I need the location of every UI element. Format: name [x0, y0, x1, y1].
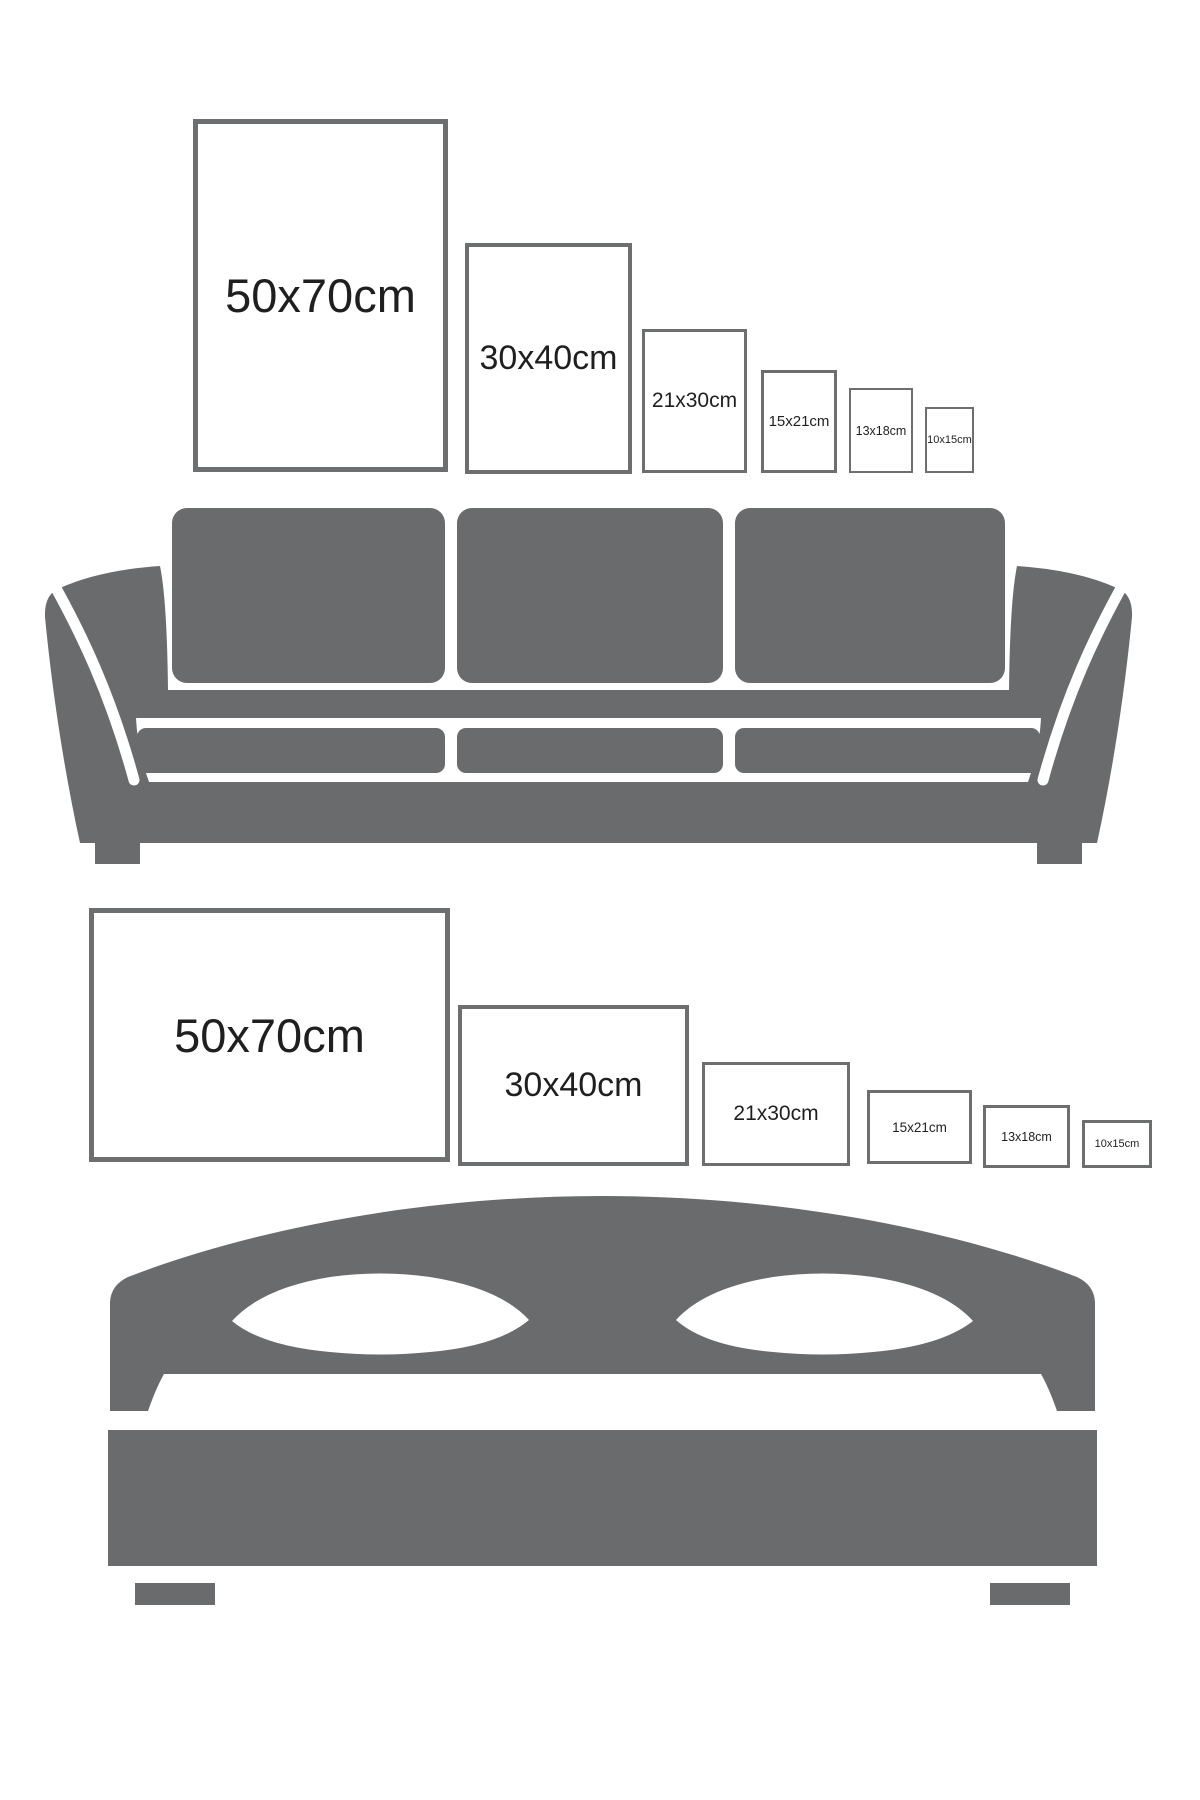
sofa-seat-cushion: [457, 728, 723, 773]
bed-base: [108, 1430, 1097, 1566]
frame-size-label: 50x70cm: [225, 268, 416, 323]
size-guide-infographic: 50x70cm 30x40cm 21x30cm 15x21cm 13x18cm …: [0, 0, 1200, 1800]
frame-size-label: 15x21cm: [892, 1120, 947, 1135]
frame-size-label: 50x70cm: [174, 1008, 365, 1063]
sofa-seat-cushion: [137, 728, 445, 773]
frame-size-label: 10x15cm: [1095, 1138, 1140, 1150]
portrait-frame-10x15: 10x15cm: [925, 407, 974, 473]
sofa-back-cushion: [735, 508, 1005, 683]
portrait-frame-30x40: 30x40cm: [465, 243, 632, 474]
portrait-frame-50x70: 50x70cm: [193, 119, 448, 472]
landscape-frame-30x40: 30x40cm: [458, 1005, 689, 1166]
frame-size-label: 30x40cm: [480, 339, 618, 378]
sofa-icon: [45, 508, 1132, 864]
landscape-frame-21x30: 21x30cm: [702, 1062, 850, 1166]
sofa-back-cushion: [172, 508, 445, 683]
landscape-frame-15x21: 15x21cm: [867, 1090, 972, 1164]
portrait-frame-21x30: 21x30cm: [642, 329, 747, 473]
portrait-frame-13x18: 13x18cm: [849, 388, 913, 473]
frame-size-label: 13x18cm: [1001, 1130, 1052, 1144]
sofa-left-foot: [95, 843, 140, 864]
landscape-frame-13x18: 13x18cm: [983, 1105, 1070, 1168]
frame-size-label: 21x30cm: [733, 1102, 818, 1126]
frame-size-label: 21x30cm: [652, 389, 737, 413]
frame-size-label: 13x18cm: [856, 424, 907, 438]
frame-size-label: 15x21cm: [769, 413, 830, 430]
sofa-seat-cushion: [735, 728, 1040, 773]
sofa-base: [80, 782, 1097, 843]
bed-left-foot: [135, 1583, 215, 1605]
sofa-deck: [105, 690, 1075, 718]
sofa-back-cushion: [457, 508, 723, 683]
frame-size-label: 10x15cm: [927, 434, 972, 446]
landscape-frame-50x70: 50x70cm: [89, 908, 450, 1162]
frame-size-label: 30x40cm: [505, 1066, 643, 1105]
landscape-frame-10x15: 10x15cm: [1082, 1120, 1152, 1168]
bed-right-foot: [990, 1583, 1070, 1605]
sofa-right-foot: [1037, 843, 1082, 864]
portrait-frame-15x21: 15x21cm: [761, 370, 837, 473]
bed-icon: [108, 1196, 1097, 1605]
